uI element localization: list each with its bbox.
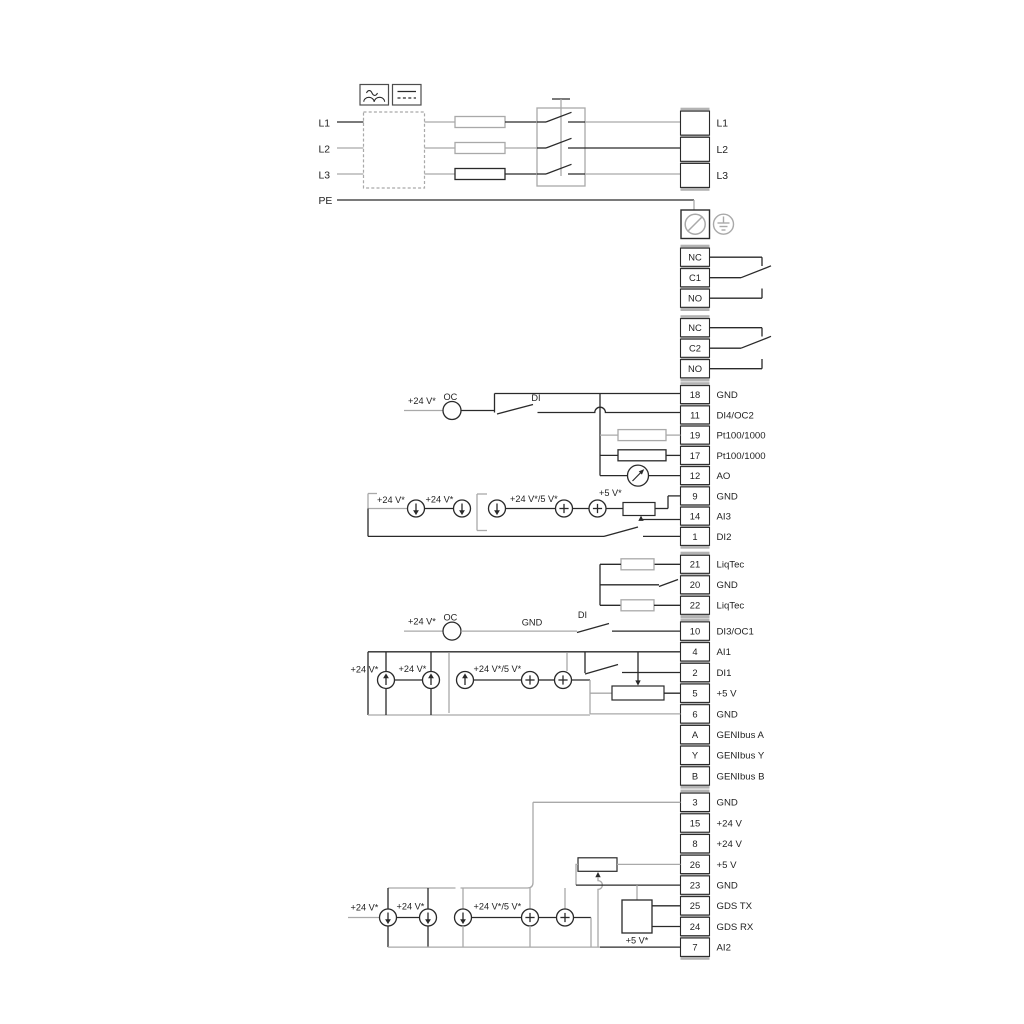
terminal-label: DI2 xyxy=(717,532,732,543)
power-output-label: L1 xyxy=(717,119,729,130)
liqtec-sensor xyxy=(621,600,654,611)
terminal-number: 11 xyxy=(690,409,700,420)
annotation-5v: +5 V* xyxy=(626,936,649,946)
annotation-24v: +24 V* xyxy=(426,495,454,505)
io-group-bottom-block xyxy=(681,790,710,960)
current-source-icon xyxy=(454,500,471,517)
power-terminal-block xyxy=(681,108,710,191)
annotation-24v: +24 V* xyxy=(408,617,436,627)
terminal-number: 3 xyxy=(692,797,697,808)
annotation-di: DI xyxy=(531,393,540,403)
annotation-oc: OC xyxy=(444,613,458,623)
terminal-number: A xyxy=(692,729,699,740)
contactor xyxy=(537,99,585,186)
terminal-label: GND xyxy=(717,491,738,502)
potentiometer xyxy=(578,858,617,877)
pt100-sensor xyxy=(618,450,666,461)
terminal-label: AI1 xyxy=(717,647,731,658)
terminal-cell xyxy=(681,137,710,161)
current-source-icon xyxy=(522,909,539,926)
terminal-number: 15 xyxy=(690,817,700,828)
current-source-icon xyxy=(455,909,472,926)
terminal-label: GND xyxy=(717,709,738,720)
annotation-24v: +24 V* xyxy=(397,902,425,912)
current-source-icon xyxy=(555,672,572,689)
di-switch xyxy=(497,405,533,415)
terminal-label: DI4/OC2 xyxy=(717,410,754,421)
terminal-number: 6 xyxy=(692,708,697,719)
terminal-label: GDS TX xyxy=(717,901,753,912)
terminal-number: 24 xyxy=(690,921,700,932)
current-source-icon xyxy=(457,672,474,689)
annotation-oc: OC xyxy=(444,392,458,402)
current-source-icon xyxy=(420,909,437,926)
terminal-number: 21 xyxy=(690,559,700,570)
annotation-24v: +24 V* xyxy=(351,903,379,913)
terminal-label: Pt100/1000 xyxy=(717,451,766,462)
io-group-top-wires xyxy=(368,394,681,537)
fuse xyxy=(455,117,505,128)
dc-symbol-icon xyxy=(393,85,422,106)
terminal-label: GND xyxy=(717,798,738,809)
terminal-label: DI1 xyxy=(717,668,732,679)
current-source-icon xyxy=(378,672,395,689)
pt100-sensor xyxy=(618,430,666,441)
di3-switch xyxy=(577,624,609,633)
terminal-number: 26 xyxy=(690,859,700,870)
terminal-label: +24 V xyxy=(717,818,743,829)
terminal-label: GND xyxy=(717,580,738,591)
current-source-icon xyxy=(522,672,539,689)
liqtec-wires xyxy=(600,559,681,611)
annotation-24v: +24 V* xyxy=(408,396,436,406)
open-collector-icon xyxy=(443,402,461,420)
terminal-number: 19 xyxy=(690,430,700,441)
power-input-label: L2 xyxy=(319,145,331,156)
terminal-label: AI2 xyxy=(717,943,731,954)
terminal-number: 9 xyxy=(692,490,697,501)
current-source-icon xyxy=(489,500,506,517)
liqtec-switch xyxy=(659,580,678,587)
terminal-label: AO xyxy=(717,471,731,482)
annotation-24v-5v: +24 V*/5 V* xyxy=(474,664,522,674)
terminal-label: DI3/OC1 xyxy=(717,627,754,638)
annotation-24v: +24 V* xyxy=(377,495,405,505)
terminal-number: 25 xyxy=(690,900,700,911)
meter-icon xyxy=(628,465,649,486)
terminal-number: 22 xyxy=(690,600,700,611)
terminal-label: GDS RX xyxy=(717,922,754,933)
terminal-number: 14 xyxy=(690,511,700,522)
io-group-top-block xyxy=(681,382,710,549)
power-output-label: L2 xyxy=(717,145,729,156)
earth-ground-icon xyxy=(714,214,734,234)
current-source-icon xyxy=(589,500,606,517)
pe-terminal-icon xyxy=(681,210,710,239)
liqtec-sensor xyxy=(621,559,654,570)
annotation-gnd: GND xyxy=(522,618,543,628)
gds-sensor-box xyxy=(622,900,652,933)
terminal-number: 8 xyxy=(692,838,697,849)
potentiometer xyxy=(623,503,655,521)
relay-1-contact xyxy=(710,257,772,298)
io-group-bottom-wires xyxy=(348,802,681,947)
terminal-label: Pt100/1000 xyxy=(717,431,766,442)
terminal-label: GND xyxy=(717,881,738,892)
power-section xyxy=(337,85,734,239)
current-source-icon xyxy=(557,909,574,926)
terminal-number: 1 xyxy=(692,531,697,542)
fuse xyxy=(455,169,505,180)
ac-symbol-icon xyxy=(360,85,389,106)
power-output-label: L3 xyxy=(717,171,729,182)
relay-2-contact xyxy=(710,328,772,369)
filter-box xyxy=(364,112,425,188)
annotation-5v: +5 V* xyxy=(599,488,622,498)
terminal-number: 23 xyxy=(690,880,700,891)
terminal-number: 7 xyxy=(692,942,697,953)
potentiometer xyxy=(612,680,664,700)
annotation-di: DI xyxy=(578,610,587,620)
terminal-number: NO xyxy=(688,363,702,374)
terminal-number: C1 xyxy=(689,272,701,283)
terminal-label: GENIbus A xyxy=(717,730,765,741)
di2-switch xyxy=(604,527,638,536)
terminal-number: 12 xyxy=(690,470,700,481)
terminal-number: 2 xyxy=(692,667,697,678)
annotation-24v-5v: +24 V*/5 V* xyxy=(510,494,558,504)
terminal-number: NO xyxy=(688,293,702,304)
current-source-icon xyxy=(556,500,573,517)
terminal-label: GENIbus B xyxy=(717,771,765,782)
terminal-number: 18 xyxy=(690,389,700,400)
terminal-number: NC xyxy=(688,322,702,333)
terminal-label: GND xyxy=(717,390,738,401)
terminal-number: 17 xyxy=(690,450,700,461)
annotation-24v-5v: +24 V*/5 V* xyxy=(474,902,522,912)
terminal-number: 5 xyxy=(692,688,697,699)
power-input-label: L1 xyxy=(319,119,331,130)
current-source-icon xyxy=(380,909,397,926)
pe-label: PE xyxy=(319,196,333,207)
current-source-icon xyxy=(423,672,440,689)
terminal-number: B xyxy=(692,770,698,781)
terminal-number: 10 xyxy=(690,626,700,637)
terminal-label: +5 V xyxy=(717,860,738,871)
io-group-mid-block xyxy=(681,618,710,788)
terminal-number: NC xyxy=(688,252,702,263)
terminal-label: +5 V xyxy=(717,689,738,700)
di1-switch xyxy=(585,665,618,675)
terminal-number: 4 xyxy=(692,646,697,657)
current-source-icon xyxy=(408,500,425,517)
terminal-label: AI3 xyxy=(717,512,731,523)
terminal-label: LiqTec xyxy=(717,560,745,571)
terminal-number: Y xyxy=(692,750,699,761)
terminal-cell xyxy=(681,163,710,187)
power-input-label: L3 xyxy=(319,171,331,182)
annotation-24v: +24 V* xyxy=(399,664,427,674)
annotation-24v: +24 V* xyxy=(351,665,379,675)
open-collector-icon xyxy=(443,622,461,640)
wiring-diagram: L1 L2 L3 PE L1 L2 L3 NC C1 NO NC C2 NO 1… xyxy=(0,0,1024,1024)
wiring-svg: L1 L2 L3 PE L1 L2 L3 NC C1 NO NC C2 NO 1… xyxy=(0,0,1024,1024)
terminal-label: +24 V xyxy=(717,839,743,850)
terminal-number: 20 xyxy=(690,579,700,590)
terminal-label: LiqTec xyxy=(717,601,745,612)
fuse xyxy=(455,143,505,154)
terminal-number: C2 xyxy=(689,343,701,354)
terminal-label: GENIbus Y xyxy=(717,751,765,762)
terminal-cell xyxy=(681,111,710,135)
